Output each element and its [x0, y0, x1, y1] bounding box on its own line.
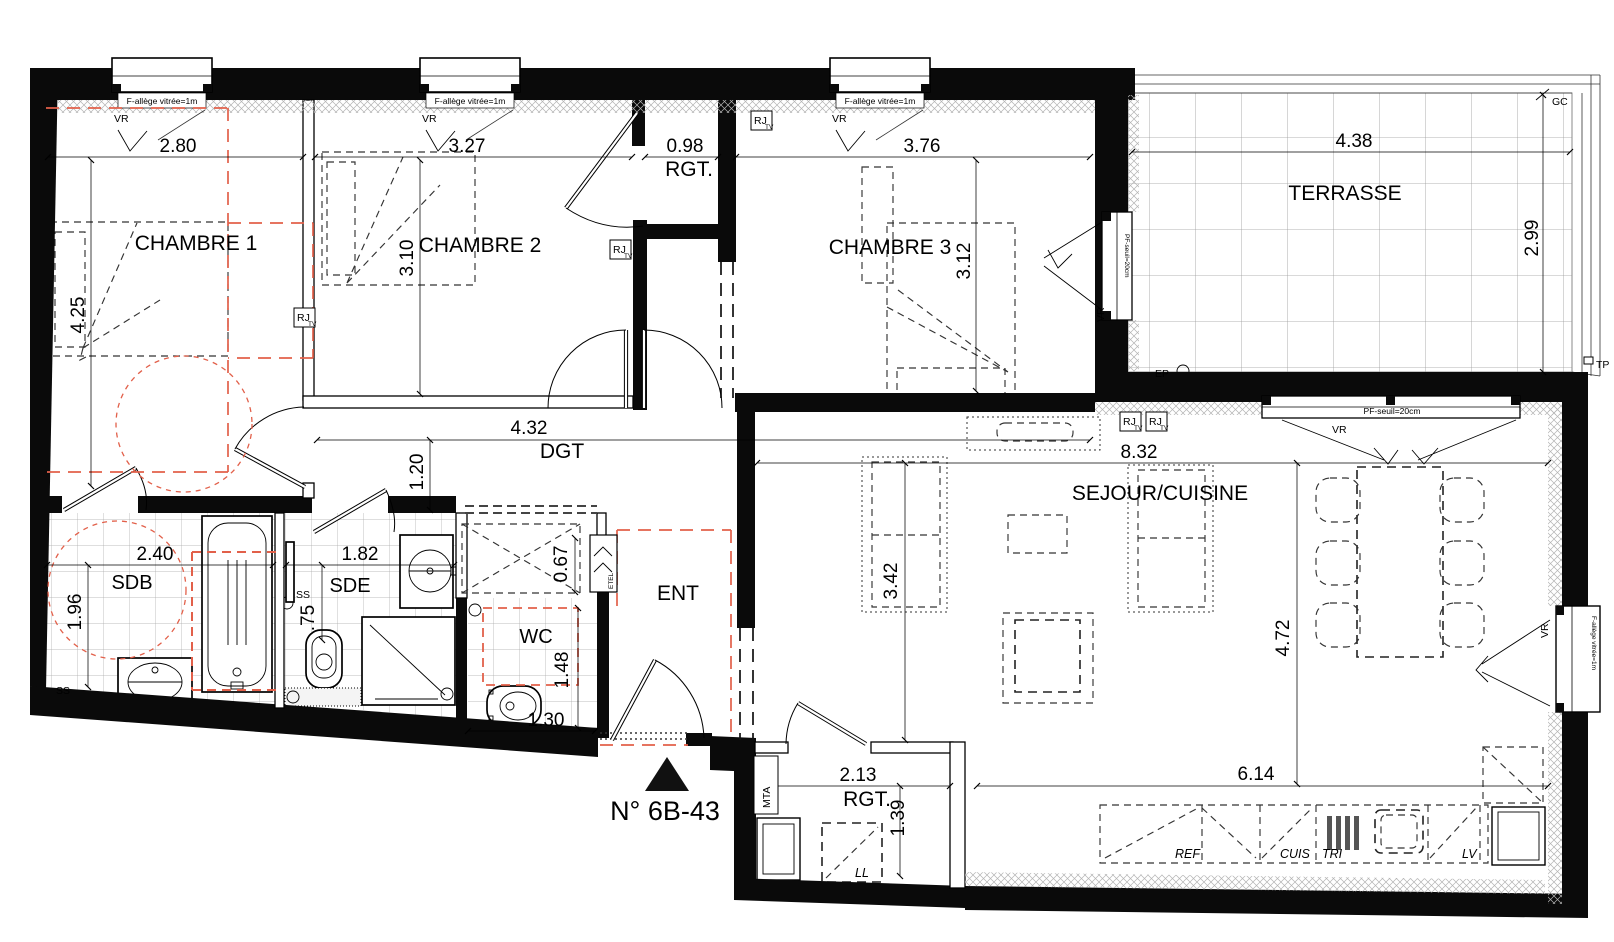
wall-sde-wc-low [456, 598, 467, 722]
window-sejour-north: PF-seuil=20cm VR [1262, 396, 1520, 464]
dim-rgt-bas-depth: 1.39 [888, 800, 909, 837]
vr-label: VR [114, 113, 129, 125]
ch1-access-zone [40, 108, 313, 472]
dim-dgt-width: 4.32 [511, 418, 548, 439]
dining-table [1357, 467, 1443, 657]
chair [1440, 541, 1484, 585]
opening-chambre3 [721, 262, 733, 398]
label-chambre1: CHAMBRE 1 [135, 232, 258, 255]
dim-sejour-depth-right: 4.72 [1273, 620, 1294, 657]
window-sill-label: F-allège vitrée=1m [127, 96, 198, 106]
wall-rgt-bas-east [950, 742, 965, 888]
dim-sde-depth: .75 [298, 605, 319, 631]
wall-rgt-bas-north1 [755, 742, 788, 753]
armchair-seat [1015, 620, 1080, 692]
wall-rgt-west [734, 766, 756, 890]
dim-placard-depth: 0.67 [551, 546, 572, 583]
dim-ch3-width: 3.76 [904, 136, 941, 157]
dim-rgt-bas-width: 2.13 [840, 765, 877, 786]
mta-label: MTA [761, 787, 773, 808]
coffee-table [1008, 515, 1067, 553]
rj-socket: RJ TV [1146, 412, 1169, 432]
window-sill-label: F-allège vitrée=1m [845, 96, 916, 106]
door-sdb [64, 468, 147, 510]
tv-zone [967, 417, 1100, 450]
dim-kitchen-width: 6.14 [1238, 764, 1275, 785]
sde-washbasin [400, 535, 459, 608]
wall-bath-north-1 [44, 496, 62, 513]
hob-icon [1327, 816, 1359, 850]
ss-label-sdb: SS [56, 685, 70, 697]
dim-ch2-width: 3.27 [449, 136, 486, 157]
cuis-label: CUIS [1280, 847, 1311, 861]
soffit-closet [465, 506, 597, 513]
chair [1316, 603, 1360, 647]
tv-label: TV [765, 124, 774, 131]
label-sdb: SDB [111, 572, 152, 594]
wall-sejour-west [737, 410, 755, 628]
rj-socket: RJ TV [610, 240, 633, 260]
door-chambre3 [644, 330, 722, 408]
wall-wc-ent [597, 590, 609, 738]
dim-rgt-haut-width: 0.98 [667, 136, 704, 157]
bed-arrow-chambre2 [347, 157, 440, 283]
chair [1316, 478, 1360, 522]
tv-label: TV [624, 253, 633, 260]
chair [1440, 478, 1484, 522]
wall-bath-north-3 [388, 496, 456, 513]
wall-ch3-sejour [735, 393, 1095, 412]
headboard-chambre2 [327, 162, 355, 275]
chair [1440, 603, 1484, 647]
etel-label: ETEL [608, 572, 615, 589]
window-terrace-door: PF-seuil=20cm VR [1044, 212, 1132, 322]
label-chambre2: CHAMBRE 2 [419, 234, 542, 257]
tv-label: TV [1134, 425, 1143, 432]
entrance-arrow-icon [645, 757, 689, 791]
dim-sejour-depth-left: 3.42 [881, 563, 902, 600]
wall-ch2-dgt [303, 396, 633, 408]
dim-ch1-width: 2.80 [160, 136, 197, 157]
ll-label: LL [855, 866, 869, 880]
kitchen-sink-basin [1381, 815, 1417, 848]
ref-label: REF [1175, 847, 1201, 861]
tp-marker-icon [1584, 357, 1593, 364]
label-rgt-bas: RGT. [843, 788, 891, 811]
vr-label: VR [1539, 623, 1551, 638]
dim-ch1-depth: 4.25 [68, 297, 89, 334]
wall-rgt-bas-north2 [871, 742, 953, 753]
tv-label: TV [308, 321, 317, 328]
utility-box [757, 818, 800, 880]
bed-arrow-chambre3 [887, 290, 1008, 372]
bathtub [202, 516, 272, 692]
rj-socket: RJ TV [294, 308, 317, 328]
door-chambre1 [235, 407, 305, 487]
label-sde: SDE [329, 575, 370, 597]
wall-ch3-west [718, 98, 736, 262]
floor-plan-page: F-allège vitrée=1m VR F-allège vitrée=1m… [0, 0, 1614, 942]
tri-label: TRI [1322, 847, 1343, 861]
gc-label: GC [1552, 96, 1568, 108]
label-ent: ENT [657, 582, 699, 605]
wall-rgt-haut-south [645, 224, 720, 239]
lv-label: LV [1462, 847, 1478, 861]
ent-access-zone [600, 530, 731, 745]
unit-number: N° 6B-43 [610, 796, 720, 826]
label-terrasse: TERRASSE [1288, 182, 1401, 205]
dim-sejour-width: 8.32 [1121, 442, 1158, 463]
wall-sdb-sde [275, 513, 284, 708]
window-sill-label: F-allège vitrée=1m [435, 96, 506, 106]
pf-seuil-label: PF-seuil=20cm [1364, 406, 1421, 416]
dim-ch2-depth: 3.10 [397, 240, 418, 277]
etel-panel: ETEL [590, 535, 617, 592]
label-rgt-haut: RGT. [665, 158, 713, 181]
dim-ch3-depth: 3.12 [954, 243, 975, 280]
dim-wc-width: 1.30 [528, 710, 565, 731]
pf-seuil-label: PF-seuil=20cm [1123, 234, 1130, 278]
tall-cabinet [1492, 807, 1545, 865]
rj-socket: RJ TV [1120, 412, 1143, 432]
wall-entry-stub [686, 733, 712, 746]
label-chambre3: CHAMBRE 3 [829, 236, 952, 259]
dim-terrasse-depth: 2.99 [1522, 220, 1543, 257]
dim-wc-depth: 1.48 [552, 652, 573, 689]
window-sejour-east: F-allège vitrée=1m VR [1476, 606, 1600, 712]
tv-console [997, 423, 1073, 441]
wardrobe-chambre3 [862, 167, 893, 283]
dim-dgt-depth: 1.20 [407, 454, 428, 491]
label-wc: WC [519, 626, 552, 648]
dim-sdb-depth: 1.96 [65, 594, 86, 631]
rj-socket: RJ TV [751, 111, 774, 131]
label-dgt: DGT [540, 440, 585, 463]
vr-label: VR [832, 113, 847, 125]
sde-rail [286, 542, 294, 602]
label-sejour: SEJOUR/CUISINE [1072, 482, 1248, 505]
dim-sdb-width: 2.40 [137, 544, 174, 565]
vr-label: VR [422, 113, 437, 125]
wall-bath-north-2 [138, 496, 312, 513]
shower [362, 617, 455, 705]
entrance-marker: N° 6B-43 [610, 757, 720, 826]
vr-label: VR [1332, 424, 1347, 436]
ss-label-sde: SS [296, 589, 310, 601]
window-sill-label: F-allège vitrée=1m [1590, 616, 1597, 670]
chair [1316, 541, 1360, 585]
tp-label: TP [1596, 359, 1609, 371]
dim-terrasse-width: 4.38 [1336, 131, 1373, 152]
door-rgt-bas [786, 703, 866, 744]
wall-rgt-south [734, 878, 965, 908]
mta-box: MTA [754, 756, 778, 814]
ep-label: EP [1155, 368, 1169, 380]
tv-label: TV [1160, 425, 1169, 432]
dim-sde-width: 1.82 [342, 544, 379, 565]
door-rgt-haut [566, 113, 643, 227]
floor-plan-drawing: F-allège vitrée=1m VR F-allège vitrée=1m… [0, 0, 1614, 942]
door-entrance [612, 660, 704, 740]
pillow-chambre3 [897, 368, 1005, 397]
opening-sejour [740, 628, 753, 740]
armchair [1003, 613, 1093, 703]
